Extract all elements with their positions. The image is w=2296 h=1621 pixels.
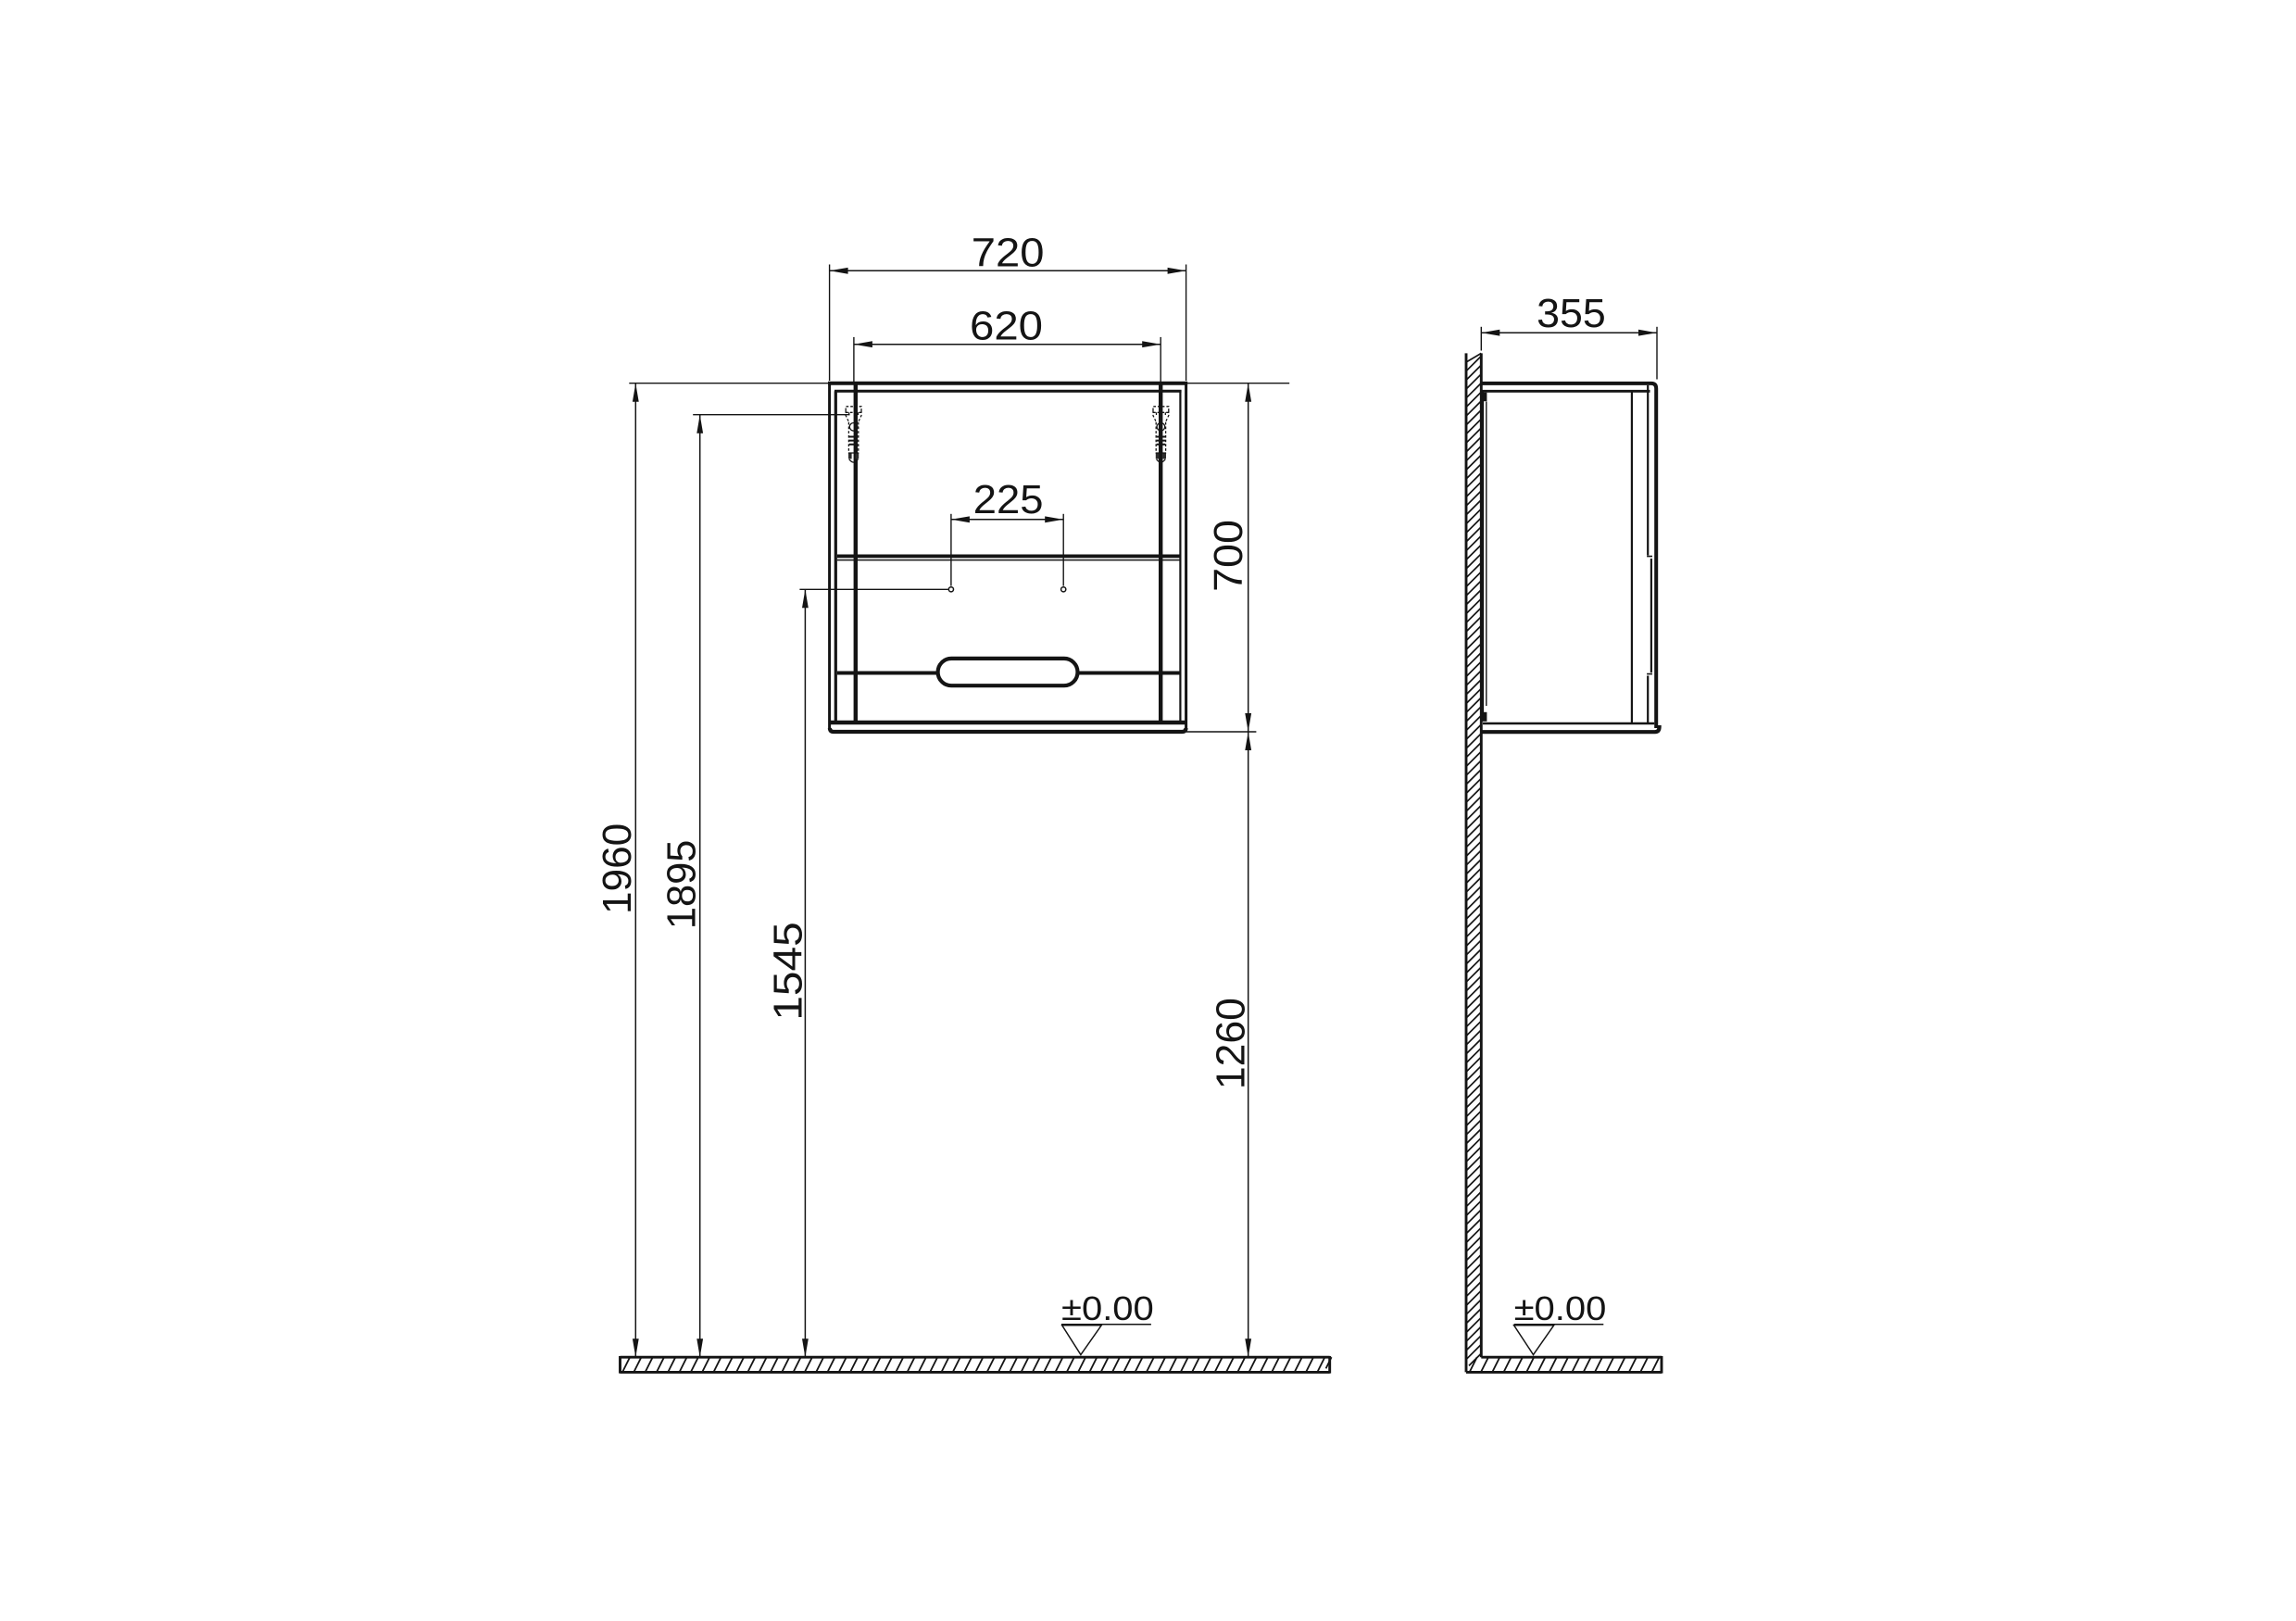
svg-text:1545: 1545 [765, 922, 810, 1020]
svg-text:700: 700 [1206, 520, 1251, 592]
svg-text:355: 355 [1537, 291, 1606, 336]
svg-text:720: 720 [972, 231, 1045, 276]
svg-text:620: 620 [970, 304, 1043, 349]
svg-text:±0.00: ±0.00 [1514, 1289, 1607, 1327]
svg-text:1260: 1260 [1209, 998, 1254, 1089]
svg-text:1895: 1895 [659, 840, 704, 930]
svg-text:±0.00: ±0.00 [1061, 1289, 1154, 1327]
svg-text:225: 225 [973, 477, 1044, 522]
svg-text:1960: 1960 [595, 823, 640, 914]
